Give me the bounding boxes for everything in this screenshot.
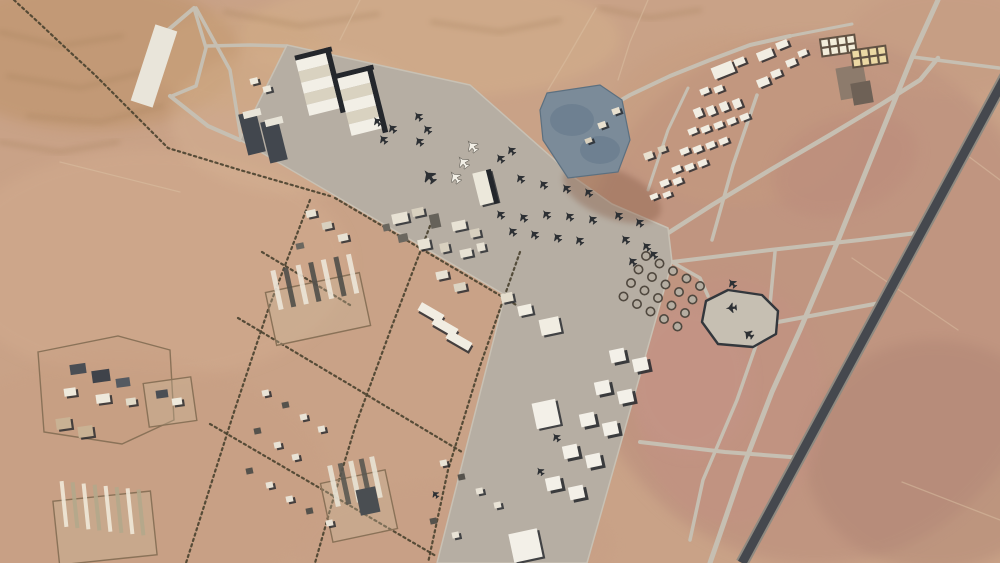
- revetment-ring: [688, 295, 696, 303]
- revetment-ring: [634, 265, 642, 273]
- revetment-ring: [667, 301, 675, 309]
- revetment-ring: [660, 315, 668, 323]
- revetment-ring: [640, 286, 648, 294]
- compound-wall: [143, 377, 197, 427]
- satellite-image: [0, 0, 1000, 563]
- octagon-alert-pad: [702, 290, 778, 347]
- revetment-ring: [675, 288, 683, 296]
- satellite-map-view: [0, 0, 1000, 563]
- revetment-ring: [696, 282, 704, 290]
- building: [156, 389, 169, 399]
- revetment-ring: [669, 267, 677, 275]
- building: [382, 223, 390, 231]
- taxiway-road: [207, 45, 287, 46]
- revetment-ring: [655, 259, 663, 267]
- revetment-ring: [633, 300, 641, 308]
- revetment-ring: [681, 309, 689, 317]
- building: [91, 369, 110, 383]
- revetment-ring: [673, 322, 681, 330]
- revetment-ring: [642, 252, 650, 260]
- revetment-ring: [627, 279, 635, 287]
- revetment-ring: [682, 274, 690, 282]
- revetment-ring: [619, 292, 627, 300]
- building: [850, 80, 874, 105]
- patch-texture: [550, 104, 594, 136]
- revetment-ring: [646, 307, 654, 315]
- revetment-ring: [648, 273, 656, 281]
- revetment-ring: [661, 280, 669, 288]
- revetment-ring: [654, 294, 662, 302]
